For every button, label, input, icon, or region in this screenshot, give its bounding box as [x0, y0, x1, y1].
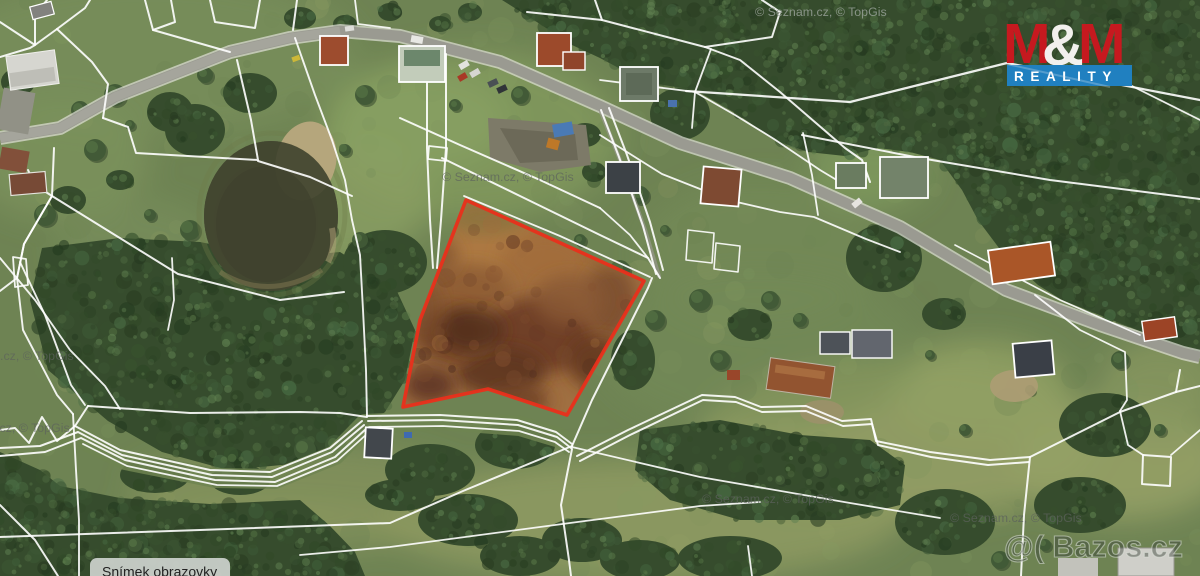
svg-text:© Seznam.cz, © TopGis: © Seznam.cz, © TopGis	[950, 511, 1082, 525]
svg-text:© Seznam.cz, © TopGis: © Seznam.cz, © TopGis	[702, 492, 834, 506]
svg-text:© Seznam.cz, © TopGis: © Seznam.cz, © TopGis	[0, 421, 70, 435]
svg-text:@( Bazos.cz: @( Bazos.cz	[1004, 530, 1183, 564]
svg-text:© Seznam.cz, © TopGis: © Seznam.cz, © TopGis	[755, 5, 887, 19]
svg-text:Snímek obrazovky: Snímek obrazovky	[102, 564, 217, 576]
svg-text:© Seznam.cz, © TopGis: © Seznam.cz, © TopGis	[0, 349, 74, 363]
svg-text:© Seznam.cz, © TopGis: © Seznam.cz, © TopGis	[442, 170, 574, 184]
